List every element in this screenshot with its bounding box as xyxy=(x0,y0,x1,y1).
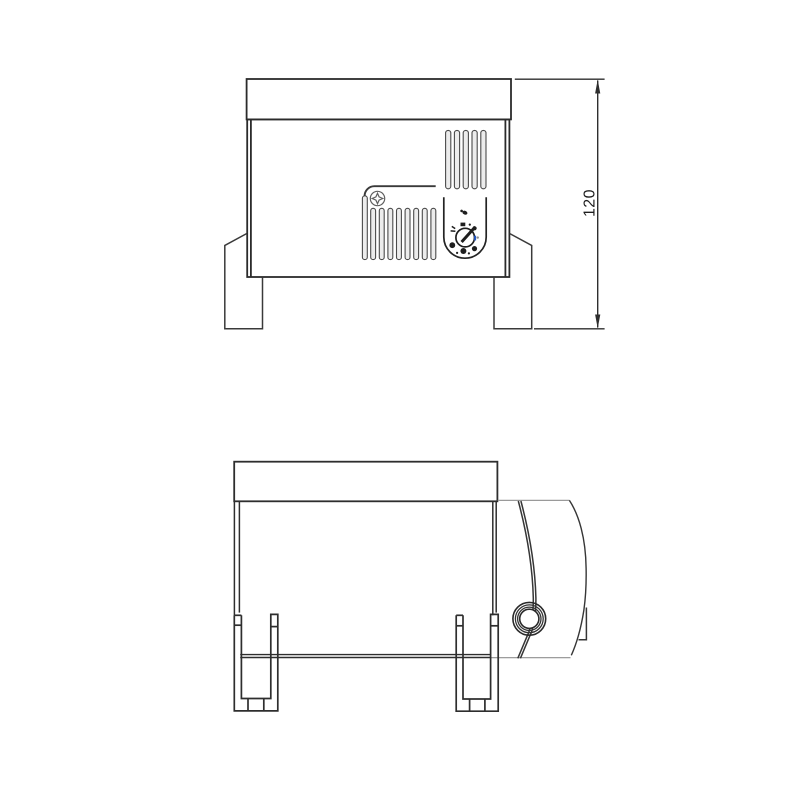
svg-text:120: 120 xyxy=(582,189,599,217)
